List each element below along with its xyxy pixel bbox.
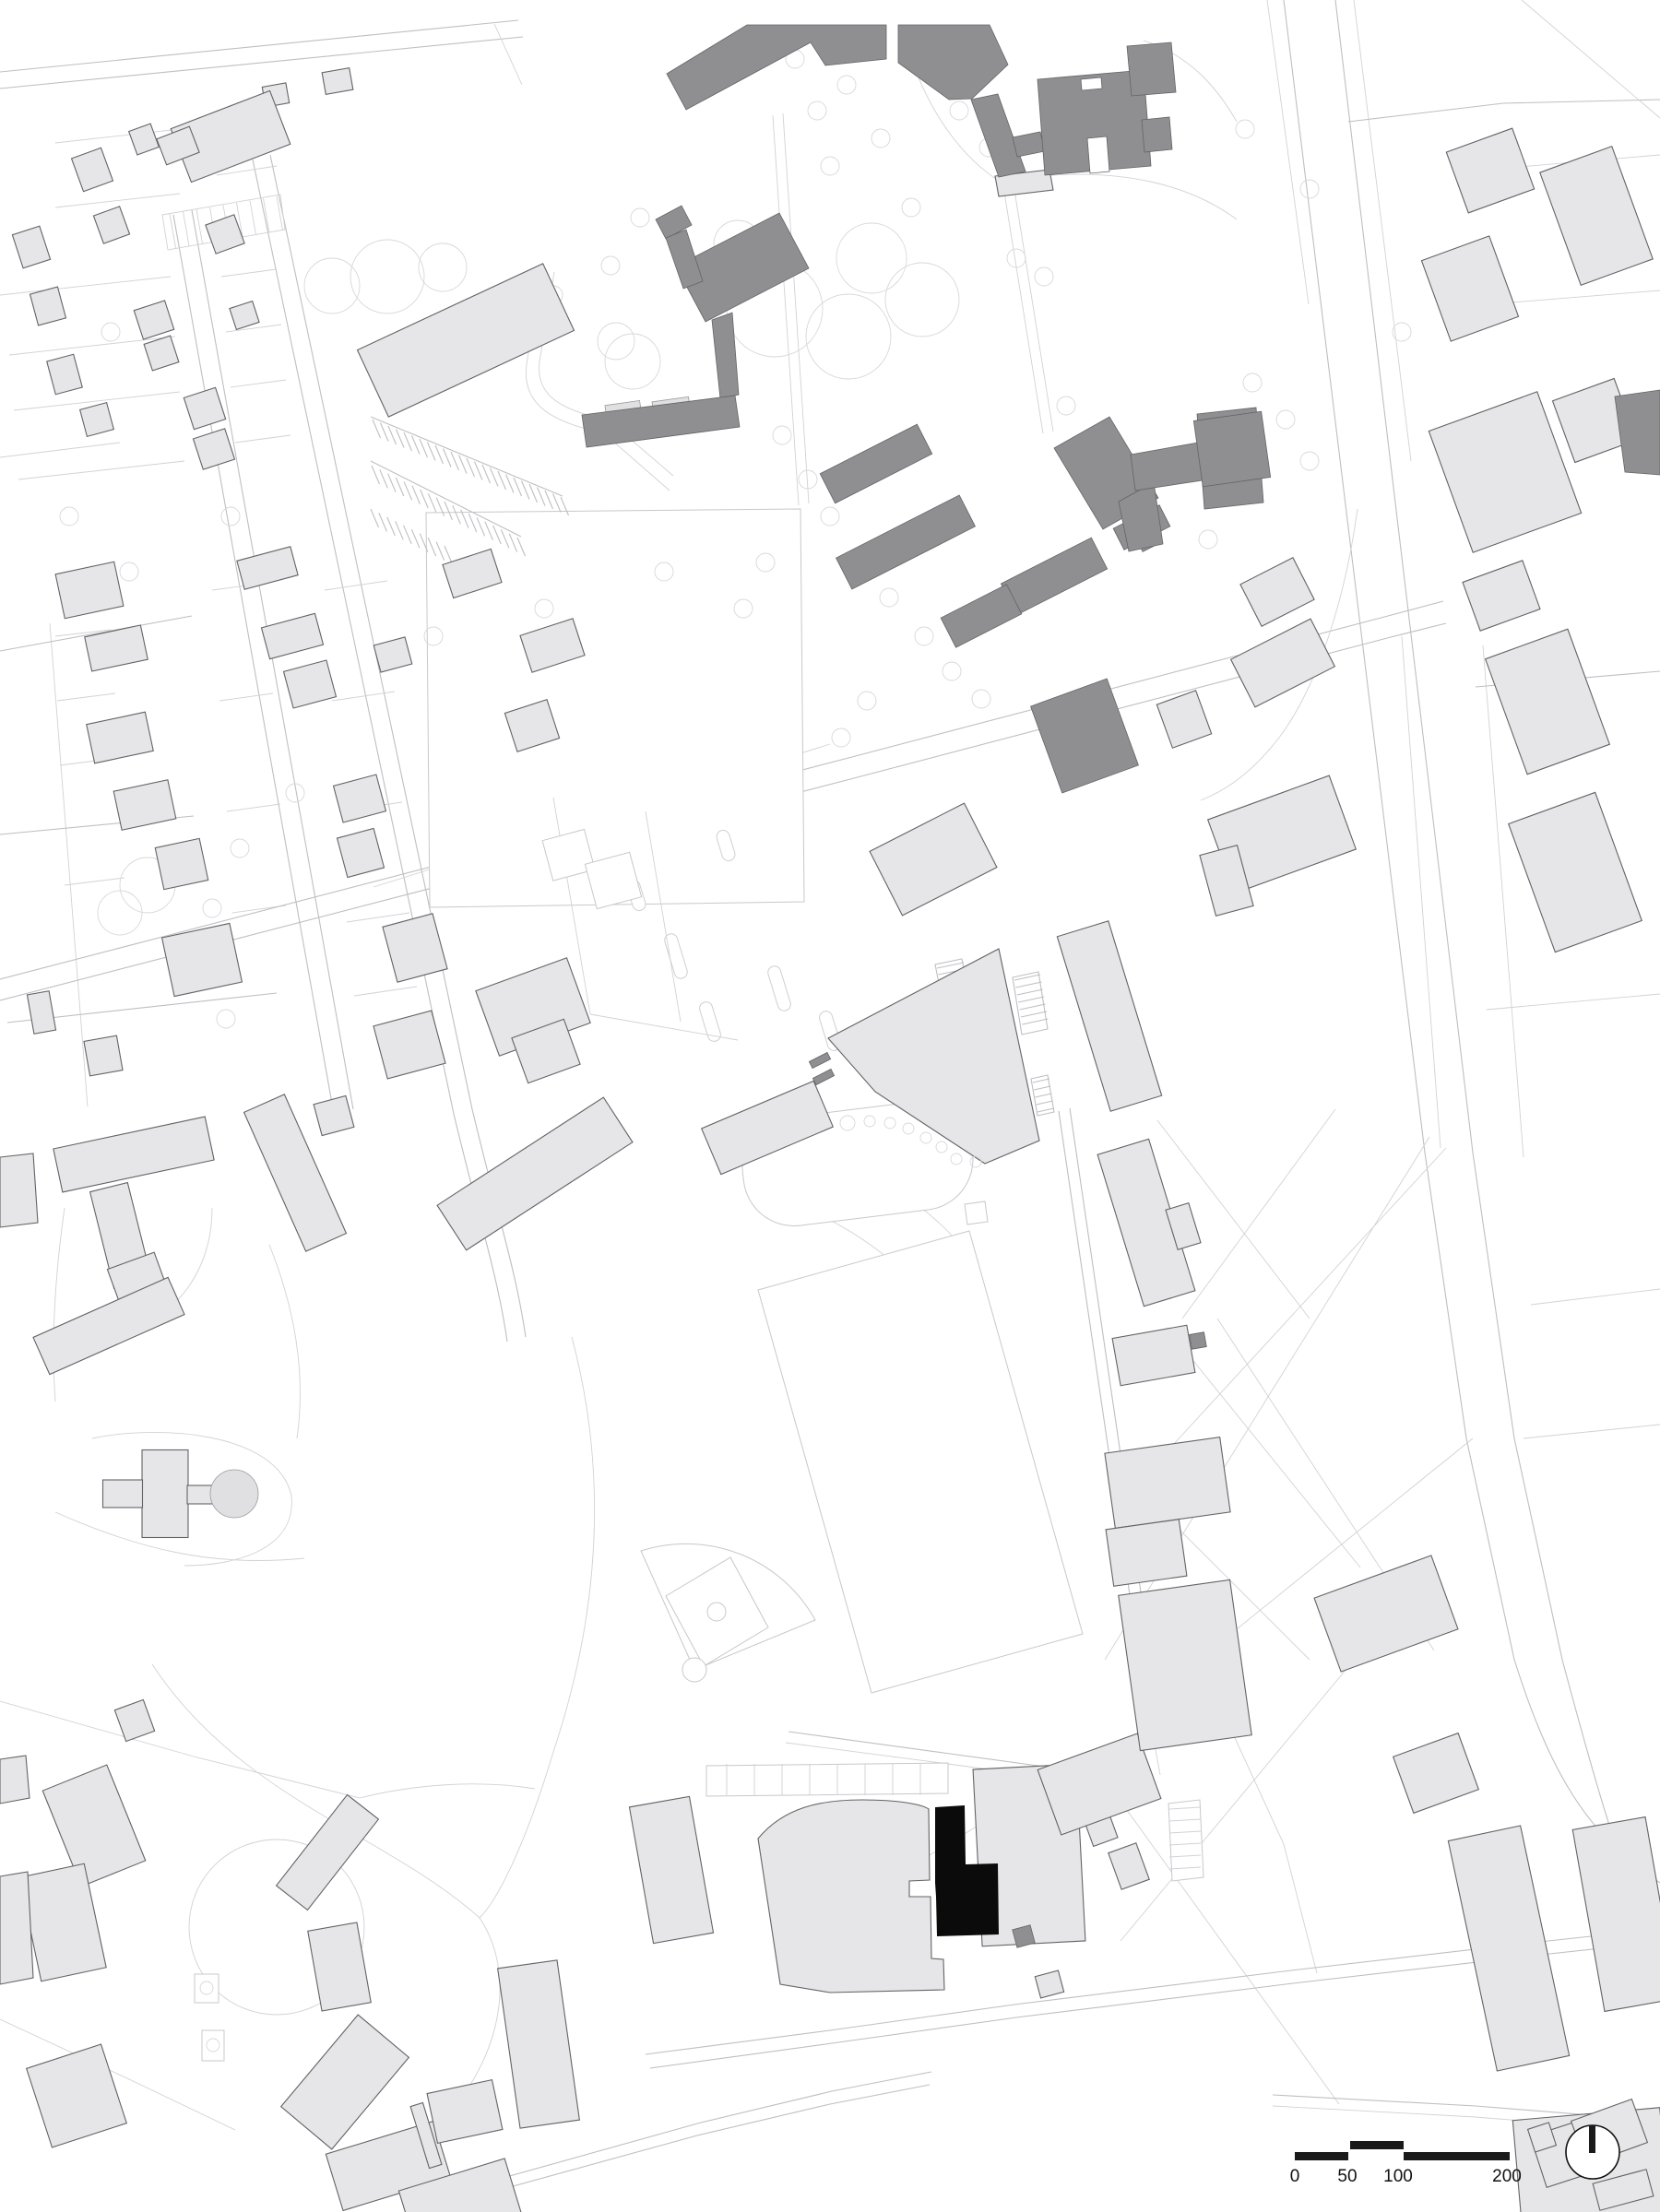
svg-text:200: 200 — [1492, 2167, 1522, 2186]
svg-text:0: 0 — [1290, 2167, 1300, 2186]
svg-text:50: 50 — [1337, 2167, 1357, 2186]
svg-text:100: 100 — [1383, 2167, 1413, 2186]
